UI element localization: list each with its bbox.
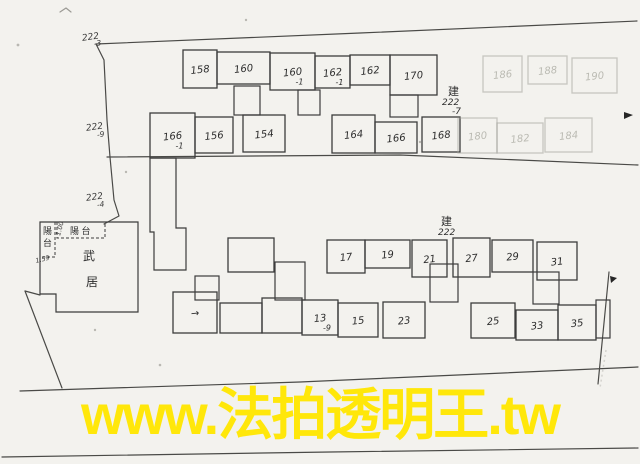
building-tag-sub: -7 (452, 107, 461, 117)
room-number: 29 (506, 251, 520, 263)
scan-speck (245, 19, 247, 21)
room-outline (262, 298, 302, 333)
room-number: → (190, 308, 199, 320)
room-number: 170 (404, 70, 424, 83)
scan-speck (94, 329, 96, 331)
upper-building-rooms: 158160160-1162-1162170186188190166-11561… (150, 50, 617, 158)
room-number: 184 (559, 130, 579, 143)
scan-speck (125, 171, 127, 173)
ink-mark (624, 112, 633, 119)
room-number-sub: -1 (296, 78, 304, 87)
building-tag-char: 建 (441, 214, 452, 228)
room-number: 180 (468, 131, 488, 144)
room-number: 168 (431, 130, 451, 143)
upper-building-tag: 建 222 -7 (442, 84, 461, 117)
room-number: 17 (339, 252, 353, 264)
room-number: 21 (423, 254, 437, 266)
connector-block (195, 276, 219, 300)
building-tag-number: 222 (438, 228, 455, 238)
balcony-left-label-bottom: 台 (43, 237, 52, 248)
room-number: 154 (254, 129, 274, 142)
room-number: 15 (351, 315, 365, 327)
room-number: 35 (570, 318, 584, 330)
connector-block (234, 86, 260, 115)
ink-mark (610, 276, 617, 283)
room-number: 160 (234, 63, 254, 76)
lower-building-tag: 建 222 (438, 214, 455, 238)
scanned-floor-plan-page: 158160160-1162-1162170186188190166-11561… (0, 0, 640, 464)
room-number: 166 (386, 133, 406, 146)
room-number: 186 (493, 69, 513, 82)
scan-speck (419, 141, 421, 143)
room-number: 33 (530, 320, 544, 332)
room-number: 190 (585, 71, 605, 84)
lot-number-3: 222 -4 (85, 191, 105, 210)
boundary-line-page-bottom (2, 448, 638, 457)
room-number-sub: -1 (176, 142, 184, 151)
connector-block (390, 95, 418, 117)
boundary-tick-left (25, 291, 40, 295)
room-number: 158 (190, 64, 210, 77)
stair-column-block (150, 158, 186, 270)
lot-number-sub: -4 (96, 199, 105, 209)
room-number-sub: -1 (336, 78, 344, 87)
lot-number-1: 222 -3 (81, 31, 102, 49)
lot-number-sub: -9 (96, 129, 105, 139)
room-number: 31 (550, 256, 564, 268)
dimension-top: 1.00 (54, 220, 65, 236)
connector-block (298, 90, 320, 115)
lot-number-sub: -3 (93, 38, 102, 48)
room-number: 182 (510, 133, 530, 146)
room-outline (228, 238, 274, 272)
left-unit-char-bottom: 居 (86, 275, 98, 289)
boundary-line-diagonal-right (598, 272, 609, 384)
connector-block (430, 264, 458, 302)
scan-speck (17, 44, 20, 47)
left-unit-char-top: 武 (83, 249, 95, 263)
boundary-line-middle (107, 155, 638, 165)
room-number: 27 (465, 253, 479, 265)
room-number: 19 (381, 249, 395, 261)
room-number: 162 (360, 65, 380, 78)
connector-block (275, 262, 305, 300)
balcony-left-label-top: 陽 (43, 226, 52, 236)
balcony-top-label: 陽 台 (70, 225, 91, 236)
room-number: 164 (344, 129, 364, 142)
room-number: 25 (486, 316, 500, 328)
room-number: 23 (397, 315, 411, 327)
website-watermark: www.法拍透明王.tw (0, 382, 640, 448)
scan-corner-mark (60, 8, 71, 12)
dimension-left: 1.59 (35, 254, 51, 265)
room-number-sub: -9 (323, 324, 331, 333)
boundary-line-top (96, 21, 637, 44)
lot-number-2: 222 -9 (85, 121, 105, 140)
room-number: 188 (538, 65, 558, 78)
scan-speck (159, 364, 162, 367)
room-outline (220, 303, 262, 333)
building-tag-char: 建 (448, 84, 459, 98)
room-number: 156 (204, 130, 224, 143)
